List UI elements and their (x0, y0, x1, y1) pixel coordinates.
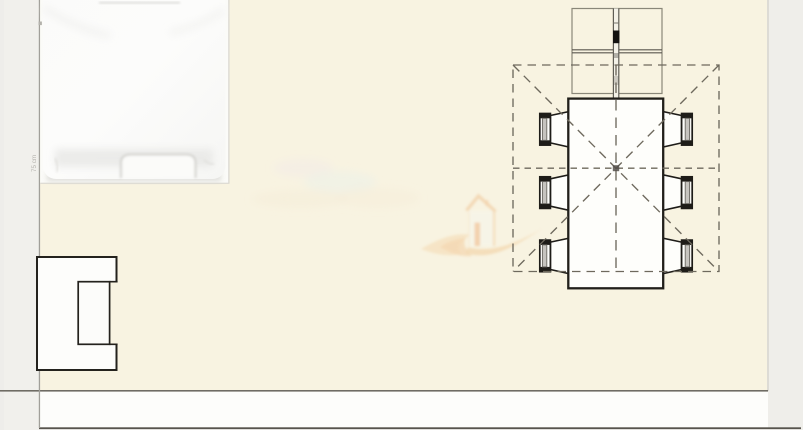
svg-text:75 cm: 75 cm (31, 155, 38, 172)
